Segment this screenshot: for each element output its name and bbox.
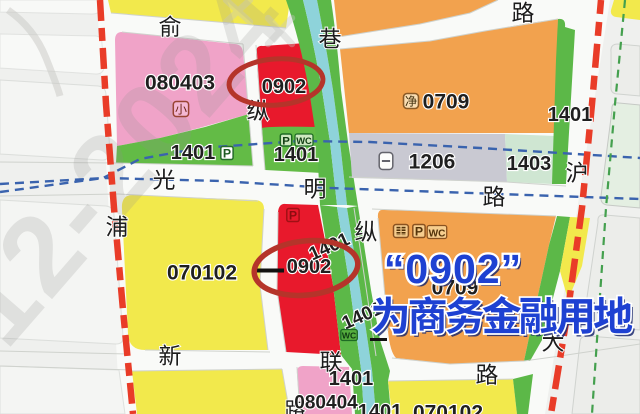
svg-text:P: P	[223, 147, 231, 161]
svg-text:0902: 0902	[262, 76, 307, 98]
svg-text:WC: WC	[342, 331, 356, 341]
svg-text:1401: 1401	[548, 104, 593, 126]
svg-text:P: P	[289, 209, 297, 223]
svg-text:070102: 070102	[413, 401, 483, 414]
svg-text:1206: 1206	[409, 150, 456, 173]
svg-text:080403: 080403	[145, 71, 215, 94]
svg-text:1401: 1401	[274, 144, 319, 166]
svg-text:P: P	[415, 225, 423, 239]
svg-text:WC: WC	[429, 228, 447, 239]
svg-text:1401: 1401	[358, 401, 403, 414]
svg-text:“0902”: “0902”	[384, 246, 522, 292]
svg-text:1401: 1401	[171, 142, 216, 164]
svg-text:1403: 1403	[507, 153, 552, 175]
svg-text:0709: 0709	[423, 90, 470, 113]
svg-text:WC: WC	[296, 135, 312, 146]
svg-text:070102: 070102	[167, 261, 237, 284]
svg-text:1401: 1401	[329, 368, 374, 390]
svg-text:080404: 080404	[294, 393, 358, 414]
svg-text:P: P	[282, 135, 290, 147]
